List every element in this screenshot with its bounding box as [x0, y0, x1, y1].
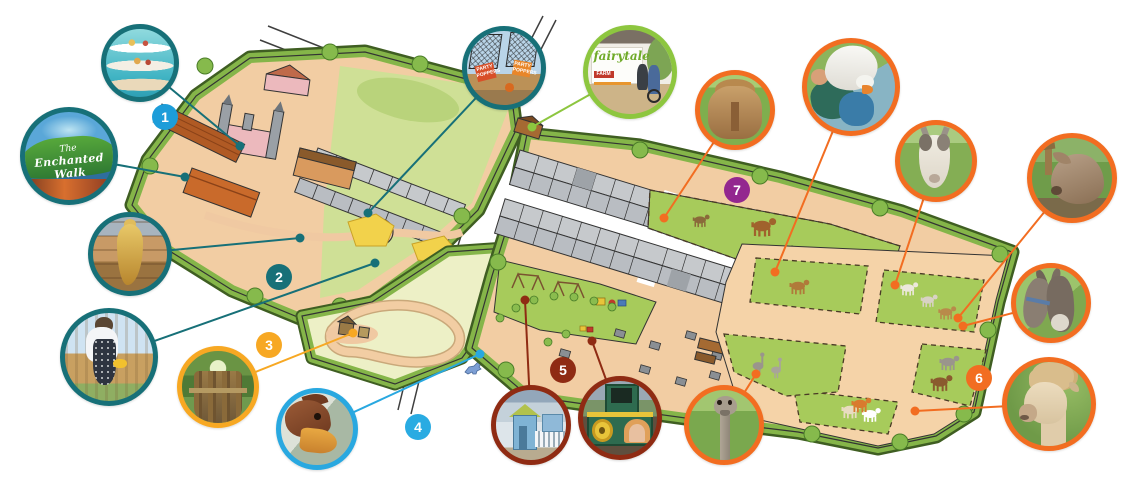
photo-callout-pony: [695, 70, 775, 150]
photo-callout-mermaid-statue: [88, 212, 172, 296]
map-zone-badge-6: 6: [966, 365, 992, 391]
map-zone-badge-7: 7: [724, 177, 750, 203]
wheelchair-wheel-shape: [647, 89, 661, 103]
train-window-shape: [611, 388, 632, 403]
ostrich-beak-shape: [720, 410, 731, 416]
goat-patch-shape: [919, 134, 932, 151]
photo-callout-treehouse: [177, 346, 259, 428]
map-zone-badge-4: 4: [405, 414, 431, 440]
photo-callout-play-train: [578, 376, 662, 460]
fairytale-farm-sign: fairytale FARM: [591, 47, 643, 84]
treehouse-frame-icon: [194, 371, 243, 423]
goose-beak-shape: [862, 85, 873, 94]
ball-shape: [505, 83, 514, 92]
blue-dinosaur-figure: [465, 362, 481, 374]
fairytale-logo-text: fairytale: [594, 50, 640, 62]
playhouse-deck-shape: [535, 431, 564, 448]
tunnel-inner-shape: [629, 424, 645, 442]
farm-park-map-graphic: The Enchanted Walk PARTY POPPERS PARTY P…: [0, 0, 1140, 500]
photo-callout-child-playing: [60, 308, 158, 406]
playhouse-door-shape: [519, 426, 527, 450]
dragon-eye-shape: [314, 413, 320, 419]
photo-callout-party-poppers: PARTY POPPERS PARTY POPPERS: [462, 26, 546, 110]
photo-callout-alpaca: [1002, 357, 1096, 451]
photo-callout-pig: [1027, 133, 1117, 223]
map-zone-badge-2: 2: [266, 264, 292, 290]
pony-blaze-shape: [731, 102, 739, 131]
donkey-muzzle-shape: [1051, 314, 1069, 331]
walkway-rail-shape: [189, 388, 247, 392]
yellow-cup-shape: [113, 359, 126, 369]
photo-callout-ostrich: [684, 385, 764, 465]
alpaca-ear-shape: [1069, 382, 1079, 392]
photo-callout-enchanted-walk-sign: The Enchanted Walk: [20, 107, 118, 205]
photo-callout-afternoon-tea: [101, 24, 179, 102]
feed-bag-shape-two: [839, 92, 874, 125]
photo-callout-playhouse: [491, 385, 571, 465]
dragon-jaw-shape: [299, 427, 339, 455]
photo-callout-goose-feeding: [802, 38, 900, 136]
photo-callout-donkeys: [1011, 263, 1091, 343]
photo-callout-goat: [895, 120, 977, 202]
farm-logo-text: FARM: [594, 71, 614, 79]
photo-callout-dragon-sculpture: [276, 388, 358, 470]
tagline-bar-shape: [594, 82, 632, 85]
lit-structure-shape: [25, 179, 113, 202]
playhouse-icon-two: [542, 414, 563, 432]
visitor-figure-shape: [637, 64, 648, 91]
mermaid-statue-icon: [117, 224, 144, 285]
alpaca-mouth-shape: [1020, 415, 1028, 420]
train-stripe-shape: [587, 412, 652, 417]
map-zone-badge-5: 5: [550, 357, 576, 383]
ostrich-neck-shape: [720, 414, 731, 460]
party-poppers-sign: PARTY POPPERS: [474, 61, 497, 81]
map-zone-badge-1: 1: [152, 104, 178, 130]
enchanted-walk-arch-sign: The Enchanted Walk: [20, 132, 118, 182]
party-poppers-sign-two: PARTY POPPERS: [512, 59, 532, 77]
goat-nose-shape: [929, 174, 941, 183]
pig-snout-shape: [1051, 186, 1061, 195]
photo-callout-farm-entrance: fairytale FARM: [583, 25, 677, 119]
map-zone-badge-3: 3: [256, 332, 282, 358]
